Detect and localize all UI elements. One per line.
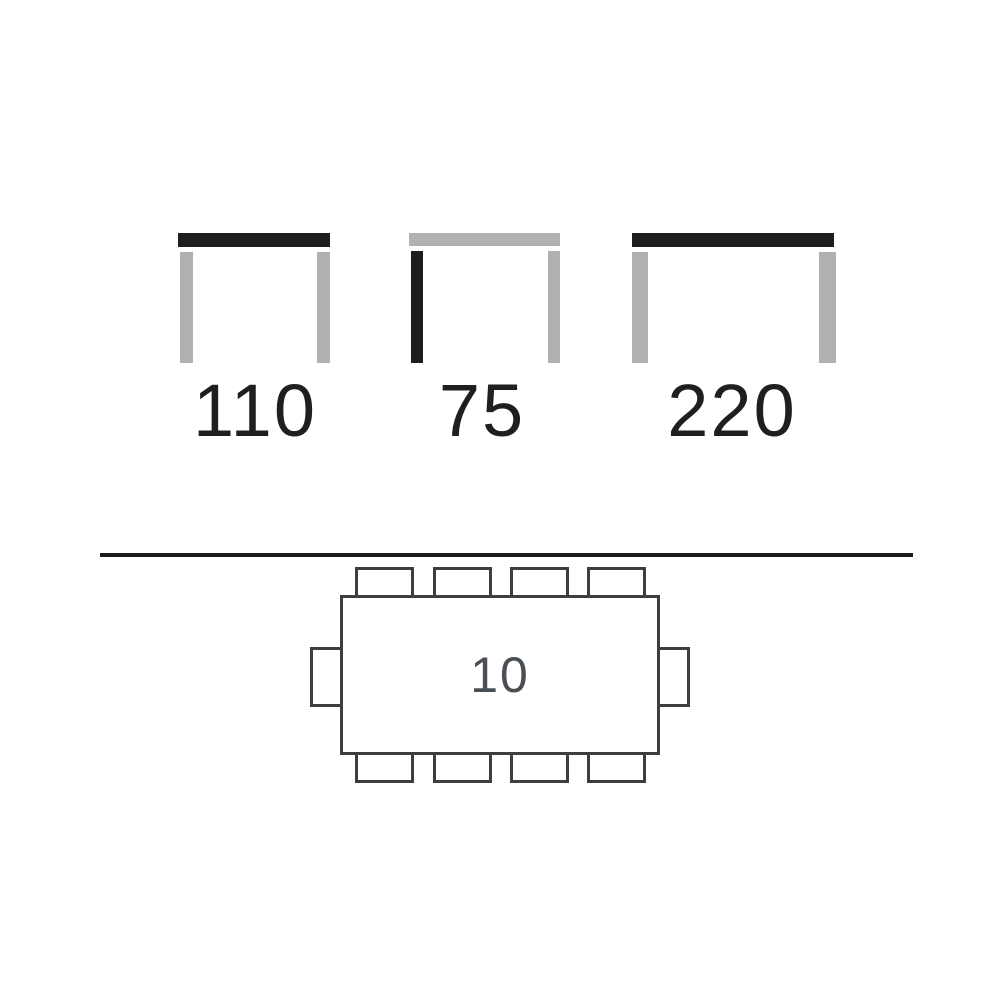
chair-top-4 xyxy=(587,567,646,598)
dimension-diagram: 110 75 220 10 xyxy=(0,0,1000,1000)
tabletop-bar xyxy=(178,233,330,247)
dimension-label-extended-width: 220 xyxy=(667,374,796,448)
chair-top-2 xyxy=(433,567,492,598)
chair-right xyxy=(657,647,690,707)
table-leg-left xyxy=(180,252,193,363)
table-leg-left xyxy=(632,252,648,363)
chair-top-3 xyxy=(510,567,569,598)
tabletop-bar xyxy=(409,233,560,246)
chair-top-1 xyxy=(355,567,414,598)
dimension-label-height: 75 xyxy=(439,374,525,448)
seat-count-label: 10 xyxy=(470,646,530,704)
table-leg-right xyxy=(317,252,330,363)
dimension-label-width: 110 xyxy=(193,374,317,448)
chair-bottom-2 xyxy=(433,752,492,783)
chair-bottom-3 xyxy=(510,752,569,783)
table-top-outline: 10 xyxy=(340,595,660,755)
table-leg-right xyxy=(819,252,836,363)
divider-line xyxy=(100,553,913,557)
chair-bottom-1 xyxy=(355,752,414,783)
table-leg-left xyxy=(411,251,423,363)
chair-bottom-4 xyxy=(587,752,646,783)
chair-left xyxy=(310,647,343,707)
tabletop-bar xyxy=(632,233,834,247)
table-leg-right xyxy=(548,251,560,363)
